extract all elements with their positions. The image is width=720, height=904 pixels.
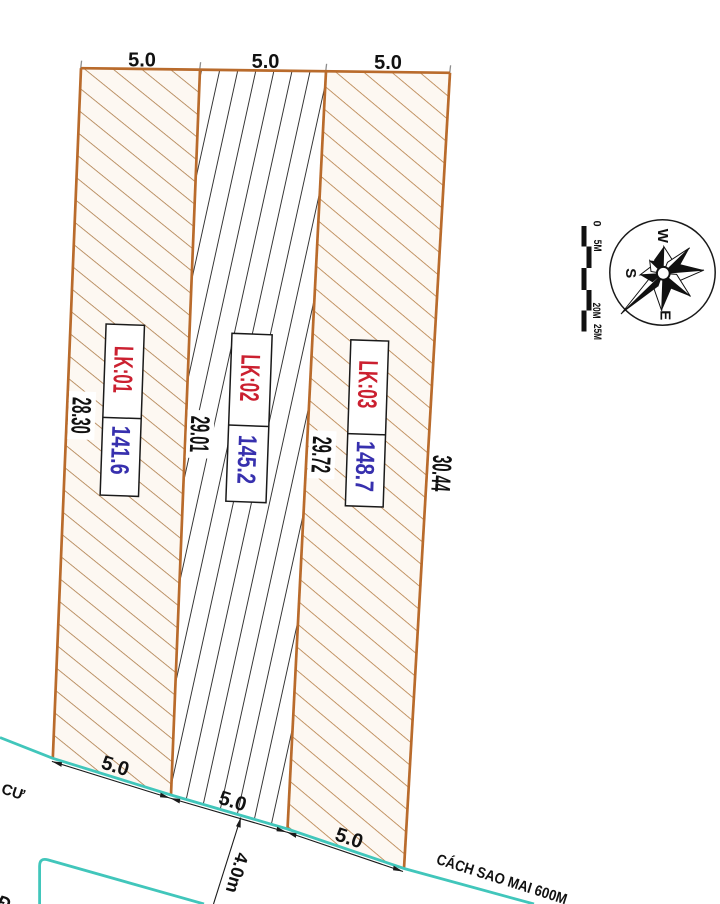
- svg-text:30.44: 30.44: [425, 454, 457, 492]
- svg-text:E: E: [656, 310, 673, 320]
- svg-text:LK:03: LK:03: [352, 360, 384, 409]
- svg-text:29.72: 29.72: [305, 436, 337, 474]
- svg-text:145.2: 145.2: [231, 434, 263, 484]
- svg-text:148.7: 148.7: [349, 440, 381, 492]
- svg-text:5.0: 5.0: [252, 51, 280, 73]
- svg-text:5M: 5M: [591, 240, 603, 252]
- svg-text:20M: 20M: [590, 303, 602, 319]
- svg-text:141.6: 141.6: [105, 425, 137, 475]
- svg-text:S: S: [622, 268, 639, 278]
- svg-text:5.0: 5.0: [128, 49, 156, 71]
- svg-text:29.01: 29.01: [184, 415, 215, 453]
- svg-text:LK:02: LK:02: [234, 354, 266, 402]
- svg-text:W: W: [654, 229, 671, 244]
- svg-text:5.0: 5.0: [374, 52, 402, 74]
- svg-text:0: 0: [591, 221, 603, 227]
- svg-text:25M: 25M: [591, 324, 603, 340]
- svg-text:28.30: 28.30: [65, 397, 96, 435]
- svg-text:LK:01: LK:01: [107, 346, 139, 394]
